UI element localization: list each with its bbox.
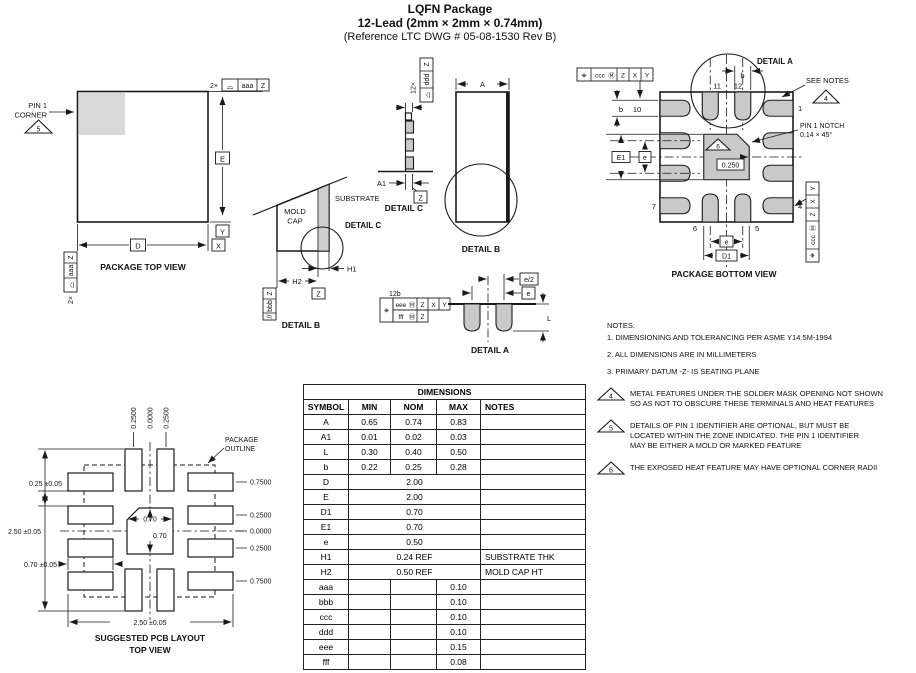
cell-max: 0.15 [437, 640, 481, 655]
cell-symbol: E1 [304, 520, 349, 535]
svg-text:Z: Z [621, 73, 625, 80]
cell-max: 0.10 [437, 580, 481, 595]
detail-a-zone-circle [691, 54, 765, 128]
cell-notes [481, 520, 586, 535]
terminal-pad-10 [660, 100, 690, 116]
cell-min: 0.65 [349, 415, 391, 430]
terminal-pad-1 [763, 100, 793, 116]
cell-min: 0.22 [349, 460, 391, 475]
dim-H2-label: H2 [292, 277, 302, 286]
pcb-pad [68, 506, 113, 524]
table-row: D2.00 [304, 475, 586, 490]
dim-D1-label: D1 [722, 254, 731, 261]
pin-6-label: 6 [693, 224, 697, 233]
pcb-width-dim-label: 2.50 ±0.05 [133, 620, 166, 627]
pcb-pad [68, 572, 113, 590]
cell-max: 0.50 [437, 445, 481, 460]
pcb-outline-label2: OUTLINE [225, 446, 256, 453]
note-5-line1: DETAILS OF PIN 1 IDENTIFIER ARE OPTIONAL… [630, 421, 849, 430]
pcb-pad [68, 473, 113, 491]
cell-max: 0.10 [437, 595, 481, 610]
cell-min [349, 580, 391, 595]
pin-10-label: 10 [633, 105, 641, 114]
col-header: SYMBOL [304, 400, 349, 415]
cell-min [349, 595, 391, 610]
position-symbol-icon: ⌖ [808, 253, 818, 258]
cell-span: 0.50 [349, 535, 481, 550]
cell-notes [481, 595, 586, 610]
col-header: MIN [349, 400, 391, 415]
cell-notes [481, 415, 586, 430]
notes-heading: NOTES: [607, 321, 635, 330]
cell-notes [481, 490, 586, 505]
pin-7-label: 7 [652, 202, 656, 211]
pin-11-label: 11 [713, 82, 721, 91]
table-title: DIMENSIONS [304, 385, 586, 400]
pcb-gap-extension [38, 491, 68, 506]
mmc-symbol-icon: Ⓜ [809, 224, 817, 231]
dim-E1-label: E1 [617, 155, 626, 162]
pcb-row-label: 0.2500 [250, 546, 272, 553]
svg-text:eee: eee [396, 302, 407, 309]
note-3: 3. PRIMARY DATUM -Z- IS SEATING PLANE [607, 367, 759, 376]
svg-text:Z: Z [421, 314, 425, 321]
terminal-pad-6 [702, 194, 718, 222]
pcb-pad [188, 539, 233, 557]
pcb-padlen-ticks [68, 558, 113, 570]
table-row: E2.00 [304, 490, 586, 505]
svg-text:Y: Y [645, 73, 650, 80]
cell-min [349, 625, 391, 640]
cell-symbol: D1 [304, 505, 349, 520]
cell-symbol: ccc [304, 610, 349, 625]
note-2: 2. ALL DIMENSIONS ARE IN MILLIMETERS [607, 350, 756, 359]
top-view-caption: PACKAGE TOP VIEW [100, 262, 186, 272]
cell-notes [481, 505, 586, 520]
pcb-row-label: 0.7500 [250, 480, 272, 487]
pcb-pad [188, 506, 233, 524]
table-row: aaa0.10 [304, 580, 586, 595]
cell-nom [391, 655, 437, 670]
terminal-pad [464, 304, 480, 331]
pcb-layout-view: 0.2500 0.0000 0.2500 0.7500 0.2500 0.000… [8, 407, 272, 655]
pin1-notch-label1: PIN 1 NOTCH [800, 123, 844, 130]
svg-text:Z: Z [810, 212, 817, 216]
pcb-row-label: 0.2500 [250, 513, 272, 520]
mmc-symbol-icon: Ⓜ [409, 313, 416, 321]
cell-symbol: A [304, 415, 349, 430]
table-row: A10.010.020.03 [304, 430, 586, 445]
terminal-pad-4 [763, 198, 793, 214]
pcb-centerpad-h-label: 0.70 [153, 533, 167, 540]
table-row: L0.300.400.50 [304, 445, 586, 460]
cell-notes [481, 535, 586, 550]
svg-text:Y: Y [810, 186, 817, 191]
fcf-parallel-bbb: Z bbb // [263, 288, 276, 320]
cell-span: 0.50 REF [349, 565, 481, 580]
cell-nom [391, 595, 437, 610]
detail-b-zone-label: DETAIL B [462, 244, 500, 254]
cell-symbol: D [304, 475, 349, 490]
svg-text:Z: Z [267, 291, 274, 296]
detail-c-view: Z ddd ⌓ 12× A1 Z DETAIL C [377, 58, 433, 213]
pcb-row-leaders [236, 482, 247, 581]
table-row: D10.70 [304, 505, 586, 520]
mold-cap-label1: MOLD [284, 207, 306, 216]
cell-notes [481, 460, 586, 475]
dim-e-half-label: e/2 [524, 277, 534, 284]
flag-note-6-number: 6 [716, 144, 720, 151]
col-header: NOM [391, 400, 437, 415]
flag-note-4-number: 4 [609, 394, 613, 401]
mold-step [406, 113, 412, 120]
flag-note-5-number: 5 [37, 127, 41, 134]
mmc-symbol-icon: Ⓜ [608, 72, 615, 80]
package-side-view: A DETAIL B [445, 78, 517, 254]
cell-span: 2.00 [349, 490, 481, 505]
cell-symbol: ddd [304, 625, 349, 640]
pin-12-label: 12 [734, 82, 742, 91]
position-symbol-icon: ⌖ [581, 71, 586, 81]
svg-text:X: X [431, 302, 436, 309]
fcf-position-ccc-right: Y X Z Ⓜ ccc ⌖ [806, 182, 819, 262]
cell-min [349, 655, 391, 670]
pcb-row-label: 0.7500 [250, 579, 272, 586]
fcf-profile-aaa-top: ⌓ aaa Z [222, 79, 269, 91]
title-block: LQFN Package 12-Lead (2mm × 2mm × 0.74mm… [344, 2, 557, 43]
qty-12x-label: 12× [411, 82, 418, 94]
cell-symbol: fff [304, 655, 349, 670]
flag-note-6-number: 6 [609, 468, 613, 475]
cell-notes [481, 445, 586, 460]
cell-max: 0.28 [437, 460, 481, 475]
dim-A-label: A [480, 80, 485, 89]
fcf-position-ccc-top: ⌖ ccc Ⓜ Z X Y [577, 68, 653, 81]
datum-Z-label: Z [316, 292, 321, 299]
notch-zone-label: 0.250 [722, 163, 740, 170]
cell-max: 0.08 [437, 655, 481, 670]
terminal-pad [406, 157, 414, 169]
qty-2x-label: 2× [210, 83, 218, 90]
cell-nom [391, 640, 437, 655]
parallelism-symbol-icon: // [267, 315, 274, 319]
pcb-gap-dim-label: 0.25 ±0.05 [29, 481, 62, 488]
terminal-pad-3 [763, 165, 793, 181]
table-row: ddd0.10 [304, 625, 586, 640]
detail-a-view: 12b ⌖ eee Ⓜ Z X Y fff Ⓜ Z e/2 e [380, 273, 551, 355]
terminal-pad-7 [660, 198, 690, 214]
pcb-pad [157, 449, 174, 491]
datum-Y-label: Y [220, 228, 225, 237]
pin1-corner-label2: CORNER [14, 111, 47, 120]
note-4-line2: SO AS NOT TO OBSCURE THESE TERMINALS AND… [630, 399, 874, 408]
cell-symbol: E [304, 490, 349, 505]
cell-nom: 0.25 [391, 460, 437, 475]
cell-max: 0.10 [437, 610, 481, 625]
table-row: b0.220.250.28 [304, 460, 586, 475]
col-header: NOTES [481, 400, 586, 415]
table-row: H20.50 REFMOLD CAP HT [304, 565, 586, 580]
pcb-height-dim-label: 2.50 ±0.05 [8, 529, 41, 536]
detail-c-zone-label: DETAIL C [345, 221, 381, 230]
svg-text:X: X [810, 199, 817, 204]
cell-min [349, 610, 391, 625]
fcf-profile-aaa-left: Z aaa ⌓ 2× [64, 252, 77, 304]
cell-notes [481, 430, 586, 445]
pcb-col-label: 0.2500 [131, 407, 138, 429]
profile-symbol-icon: ⌓ [227, 82, 234, 91]
svg-text:Z: Z [261, 83, 266, 90]
package-drawing-page: LQFN Package 12-Lead (2mm × 2mm × 0.74mm… [0, 0, 916, 673]
dim-D-label: D [135, 242, 141, 251]
dim-A1-label: A1 [377, 179, 386, 188]
package-bottom-view: 6 0.250 DETAIL A SEE NOTES 4 PIN 1 NOTCH… [577, 54, 849, 279]
detail-c-dim-ticks [406, 103, 413, 112]
cell-symbol: bbb [304, 595, 349, 610]
bottom-view-caption: PACKAGE BOTTOM VIEW [672, 269, 778, 279]
dim-e-label: e [643, 155, 647, 162]
cell-span: 0.24 REF [349, 550, 481, 565]
cell-span: 2.00 [349, 475, 481, 490]
pcb-pad [157, 569, 174, 611]
pcb-caption-line2: TOP VIEW [129, 645, 171, 655]
pcb-col-label: 0.2500 [164, 407, 171, 429]
mold-cap-label2: CAP [287, 217, 302, 226]
detail-a-zone-label: DETAIL A [757, 57, 793, 66]
pcb-pad [68, 539, 113, 557]
pcb-row-label: 0.0000 [250, 529, 272, 536]
qty-12b-label: 12b [389, 291, 401, 298]
pcb-col-label: 0.0000 [148, 407, 155, 429]
cell-min: 0.30 [349, 445, 391, 460]
dim-b-label: b [740, 71, 744, 80]
notes-section: NOTES: 1. DIMENSIONING AND TOLERANCING P… [598, 321, 883, 475]
cell-max: 0.10 [437, 625, 481, 640]
svg-text:Z: Z [424, 62, 431, 67]
table-row: E10.70 [304, 520, 586, 535]
fcf-profile-ddd: Z ddd ⌓ [420, 58, 433, 102]
svg-text:aaa: aaa [68, 265, 75, 277]
dim-e-bot-label: e [725, 240, 729, 247]
cell-nom: 0.02 [391, 430, 437, 445]
pcb-padlen-dim-label: 0.70 ±0.05 [24, 562, 57, 569]
dim-L-extension-lines [513, 304, 549, 331]
see-notes-label: SEE NOTES [806, 76, 849, 85]
svg-text:Z: Z [68, 255, 75, 260]
cell-nom [391, 625, 437, 640]
dim-e-label: e [527, 291, 531, 298]
cell-min: 0.01 [349, 430, 391, 445]
pcb-pad [125, 569, 142, 611]
substrate-strip [318, 184, 329, 251]
terminal-pad [496, 304, 512, 331]
cell-symbol: b [304, 460, 349, 475]
flag-note-4-number: 4 [824, 96, 828, 103]
note-1: 1. DIMENSIONING AND TOLERANCING PER ASME… [607, 333, 832, 342]
pin-5-label: 5 [755, 224, 759, 233]
svg-text:2×: 2× [68, 296, 75, 304]
svg-text:ccc: ccc [595, 73, 606, 80]
table-row: ccc0.10 [304, 610, 586, 625]
dim-A1-ticks [406, 174, 413, 190]
table-row: e0.50 [304, 535, 586, 550]
cell-notes: SUBSTRATE THK [481, 550, 586, 565]
svg-text:bbb: bbb [267, 300, 274, 312]
title-line3: (Reference LTC DWG # 05-08-1530 Rev B) [344, 31, 557, 43]
cell-min [349, 640, 391, 655]
dim-b-label: b [619, 105, 623, 114]
cell-nom: 0.74 [391, 415, 437, 430]
cell-max: 0.03 [437, 430, 481, 445]
cell-notes [481, 640, 586, 655]
note-5-line3: MAY BE EITHER A MOLD OR MARKED FEATURE [630, 441, 801, 450]
detail-b-view: MOLD CAP SUBSTRATE DETAIL C H1 H2 Z bbb … [253, 177, 381, 330]
dim-L-label: L [547, 314, 551, 323]
cell-nom [391, 580, 437, 595]
svg-text:fff: fff [398, 314, 403, 321]
note-5-line2: LOCATED WITHIN THE ZONE INDICATED. THE P… [630, 431, 860, 440]
cell-notes [481, 610, 586, 625]
pin1-corner-region [79, 93, 125, 135]
position-symbol-icon: ⌖ [384, 306, 389, 316]
side-view-body [456, 92, 509, 222]
table-header-row: SYMBOL MIN NOM MAX NOTES [304, 400, 586, 415]
pin1-corner-label: PIN 1 [28, 101, 47, 110]
terminal-pad-11 [702, 92, 718, 120]
title-line2: 12-Lead (2mm × 2mm × 0.74mm) [358, 16, 543, 30]
dimensions-table: DIMENSIONS SYMBOL MIN NOM MAX NOTES A0.6… [303, 384, 586, 670]
cell-notes [481, 475, 586, 490]
cell-notes: MOLD CAP HT [481, 565, 586, 580]
table-row: A0.650.740.83 [304, 415, 586, 430]
title-line1: LQFN Package [408, 2, 493, 16]
table-title-row: DIMENSIONS [304, 385, 586, 400]
pcb-caption-line1: SUGGESTED PCB LAYOUT [95, 633, 206, 643]
cell-symbol: H2 [304, 565, 349, 580]
dim-H1-label: H1 [347, 265, 357, 274]
profile-symbol-icon: ⌓ [423, 91, 432, 98]
detail-c-caption: DETAIL C [385, 203, 423, 213]
detail-b-caption: DETAIL B [282, 320, 320, 330]
mmc-symbol-icon: Ⓜ [409, 301, 416, 309]
terminal-pad-12 [735, 92, 751, 120]
datum-X-label: X [216, 242, 221, 251]
fcf-position-eee-fff: ⌖ eee Ⓜ Z X Y fff Ⓜ Z [380, 298, 450, 322]
pcb-outline-label1: PACKAGE [225, 437, 259, 444]
cell-nom: 0.40 [391, 445, 437, 460]
note-4-line1: METAL FEATURES UNDER THE SOLDER MASK OPE… [630, 389, 883, 398]
col-header: MAX [437, 400, 481, 415]
dim-E-label: E [220, 155, 225, 164]
flag-note-5-number: 5 [609, 426, 613, 433]
cell-symbol: e [304, 535, 349, 550]
cell-symbol: eee [304, 640, 349, 655]
table-row: H10.24 REFSUBSTRATE THK [304, 550, 586, 565]
svg-text:aaa: aaa [242, 83, 254, 90]
table-row: eee0.15 [304, 640, 586, 655]
cell-max: 0.83 [437, 415, 481, 430]
terminal-pad [406, 139, 414, 151]
cell-symbol: H1 [304, 550, 349, 565]
terminal-pad [406, 121, 414, 133]
svg-text:Y: Y [442, 302, 447, 309]
pin-1-label: 1 [798, 104, 802, 113]
cell-span: 0.70 [349, 505, 481, 520]
cell-notes [481, 625, 586, 640]
table-row: bbb0.10 [304, 595, 586, 610]
cell-symbol: A1 [304, 430, 349, 445]
svg-text:ddd: ddd [424, 74, 431, 86]
svg-text:ccc: ccc [810, 234, 817, 245]
cell-span: 0.70 [349, 520, 481, 535]
pcb-pad [188, 572, 233, 590]
substrate-label: SUBSTRATE [335, 194, 379, 203]
svg-text:Z: Z [421, 302, 425, 309]
table-row: fff0.08 [304, 655, 586, 670]
datum-Z-label: Z [418, 194, 423, 203]
pin1-notch-label2: 0.14 × 45° [800, 131, 832, 139]
cell-notes [481, 580, 586, 595]
pcb-pad [125, 449, 142, 491]
pcb-pad [188, 473, 233, 491]
profile-symbol-icon: ⌓ [67, 281, 76, 288]
terminal-pad-5 [735, 194, 751, 222]
cell-notes [481, 655, 586, 670]
note-6-line1: THE EXPOSED HEAT FEATURE MAY HAVE OPTION… [630, 463, 877, 472]
cell-nom [391, 610, 437, 625]
svg-text:X: X [633, 73, 638, 80]
cell-symbol: L [304, 445, 349, 460]
cell-symbol: aaa [304, 580, 349, 595]
detail-a-caption: DETAIL A [471, 345, 509, 355]
package-top-view: PIN 1 CORNER 5 2× ⌓ aaa Z E Y D X Z aaa [14, 79, 269, 304]
pcb-outline-arrow [208, 448, 224, 463]
